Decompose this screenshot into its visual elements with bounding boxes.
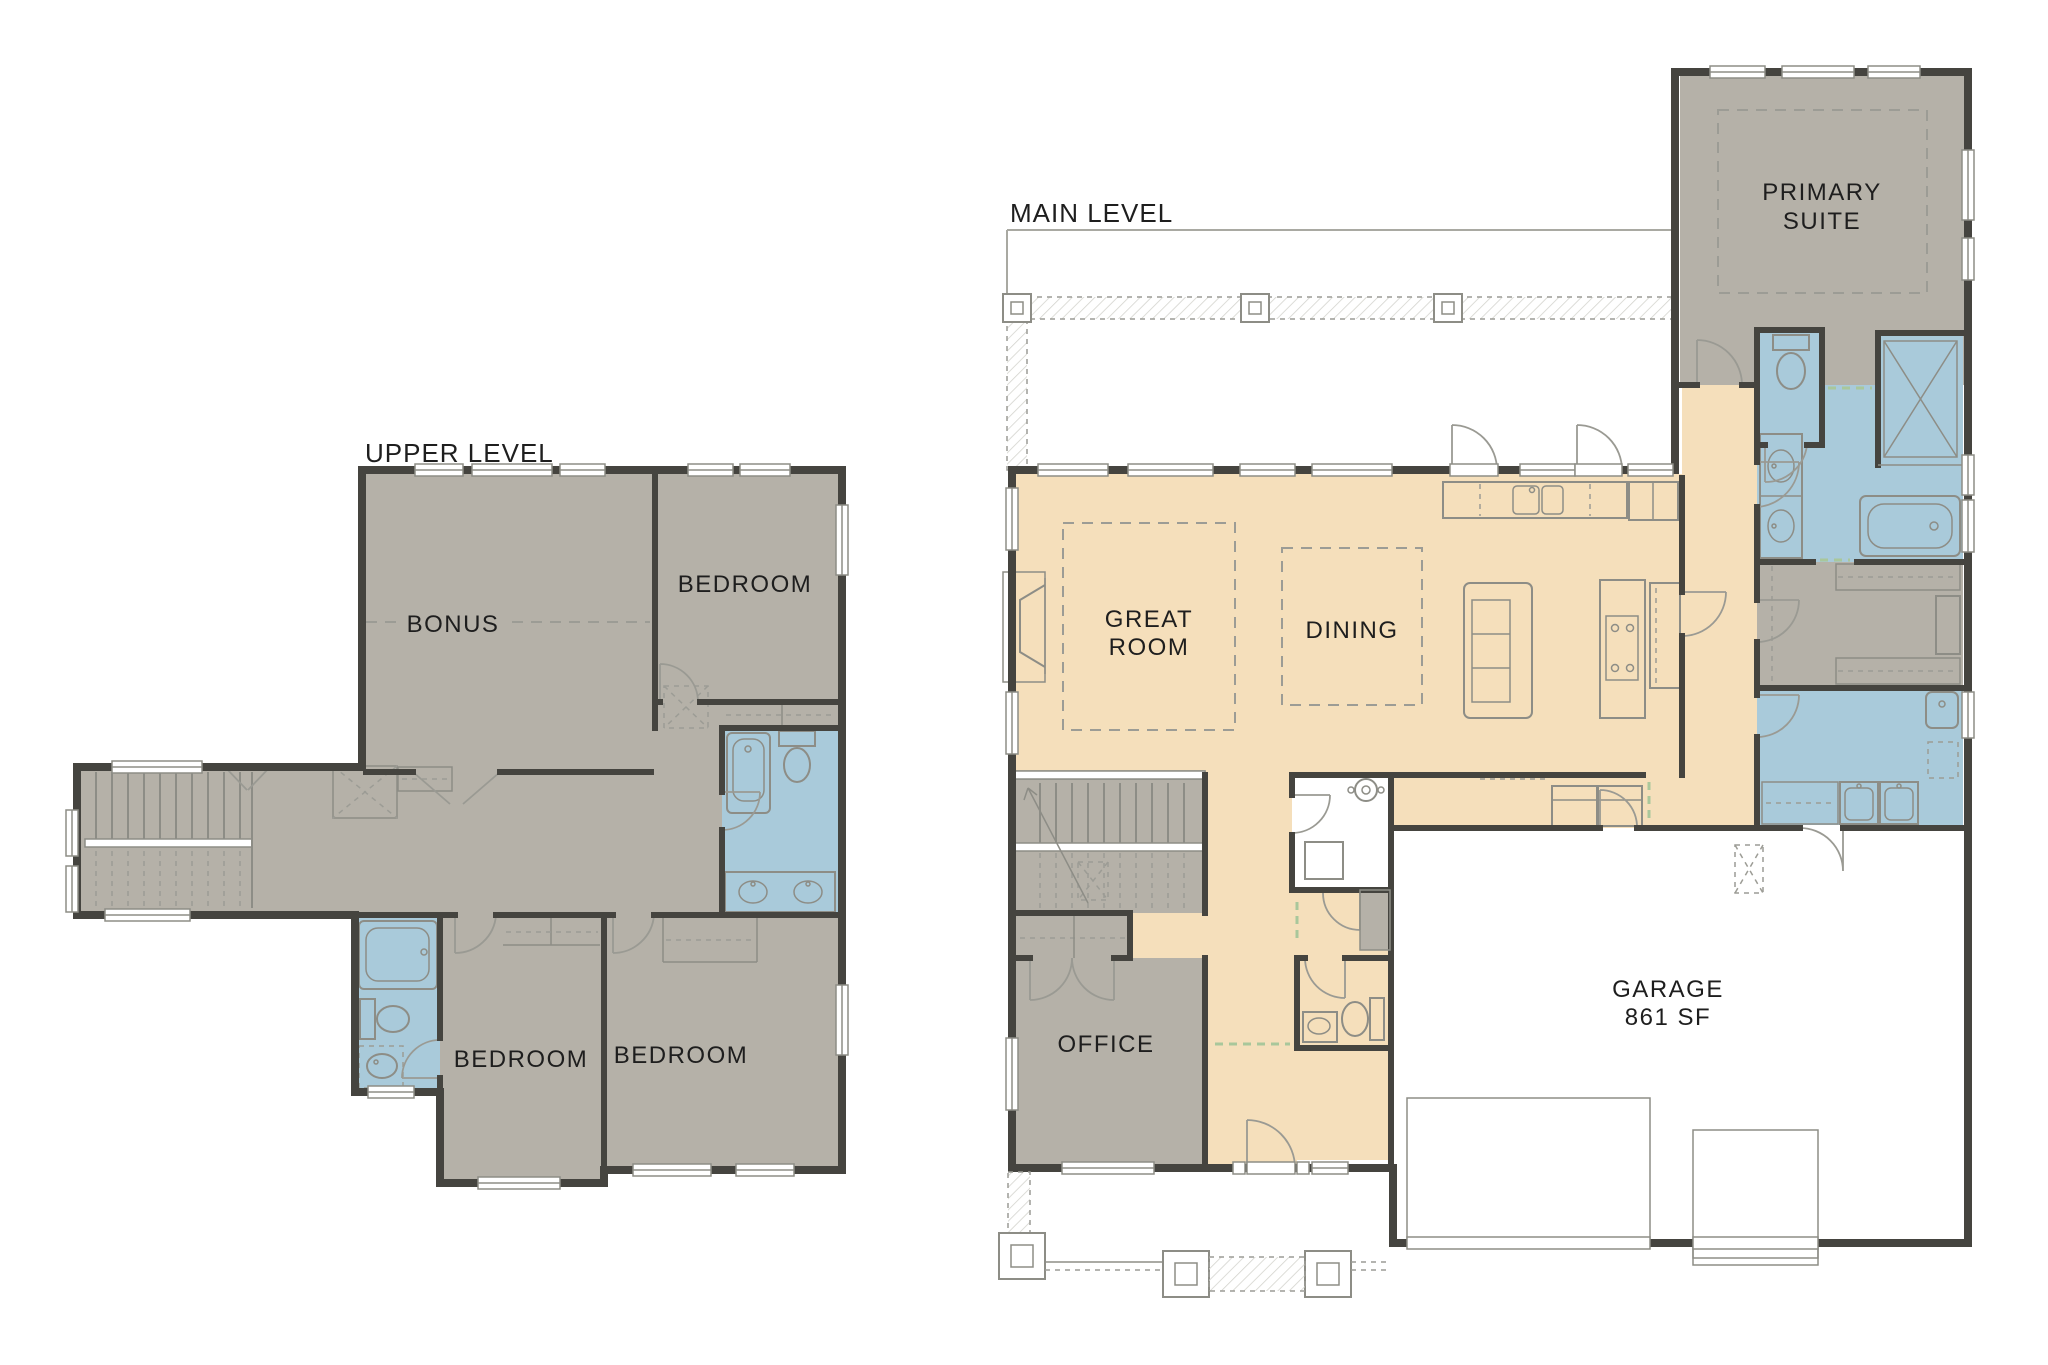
primary-suite-label-line2: SUITE	[1783, 208, 1861, 235]
vestibule-floor-patch	[1130, 913, 1205, 958]
great-room-label-line2: ROOM	[1109, 634, 1190, 661]
bedroom-bottom-right-label: BEDROOM	[614, 1042, 749, 1069]
deck-post	[1003, 294, 1031, 322]
bath-passage-floor	[1822, 385, 1878, 445]
deck-post	[1241, 294, 1269, 322]
suite-hall-floor	[1682, 385, 1757, 828]
water-closet-floor	[1757, 330, 1822, 445]
garage-floor	[1393, 828, 1963, 1243]
porch-post	[1305, 1251, 1351, 1297]
porch-post	[1163, 1251, 1209, 1297]
main-level-title: MAIN LEVEL	[1010, 198, 1173, 228]
garage-area-label: 861 SF	[1625, 1004, 1711, 1031]
great-room-label-line1: GREAT	[1105, 606, 1193, 633]
bonus-label: BONUS	[407, 611, 500, 638]
bedroom-top-right-label: BEDROOM	[678, 571, 813, 598]
coat-closet-floor	[1360, 890, 1390, 950]
garage-label: GARAGE	[1612, 976, 1724, 1003]
upper-level-plan: UPPER LEVEL BONUS BEDROOM BEDROOM BEDROO…	[66, 438, 848, 1189]
main-level-plan: MAIN LEVEL GREAT ROOM DINING OFFICE PRIM…	[999, 66, 1974, 1297]
walk-in-closet-floor	[1757, 562, 1963, 688]
upper-hall-floor-2	[655, 702, 722, 915]
mudroom-floor	[1391, 775, 1682, 828]
dining-label: DINING	[1306, 617, 1399, 644]
primary-suite-label-line1: PRIMARY	[1762, 179, 1881, 206]
porch-post	[999, 1233, 1045, 1279]
deck-post	[1434, 294, 1462, 322]
floor-plan-sheet: UPPER LEVEL BONUS BEDROOM BEDROOM BEDROO…	[0, 0, 2048, 1365]
floor-plan-canvas: UPPER LEVEL BONUS BEDROOM BEDROOM BEDROO…	[0, 0, 2048, 1365]
laundry-floor	[1757, 688, 1963, 825]
front-porch	[999, 1172, 1391, 1297]
foyer-floor	[1205, 775, 1297, 1168]
stair-railing	[1012, 771, 1205, 779]
upper-level-title: UPPER LEVEL	[365, 438, 554, 468]
bedroom-bottom-middle-label: BEDROOM	[454, 1046, 589, 1073]
office-label: OFFICE	[1058, 1031, 1155, 1058]
rear-deck	[1003, 230, 1675, 470]
